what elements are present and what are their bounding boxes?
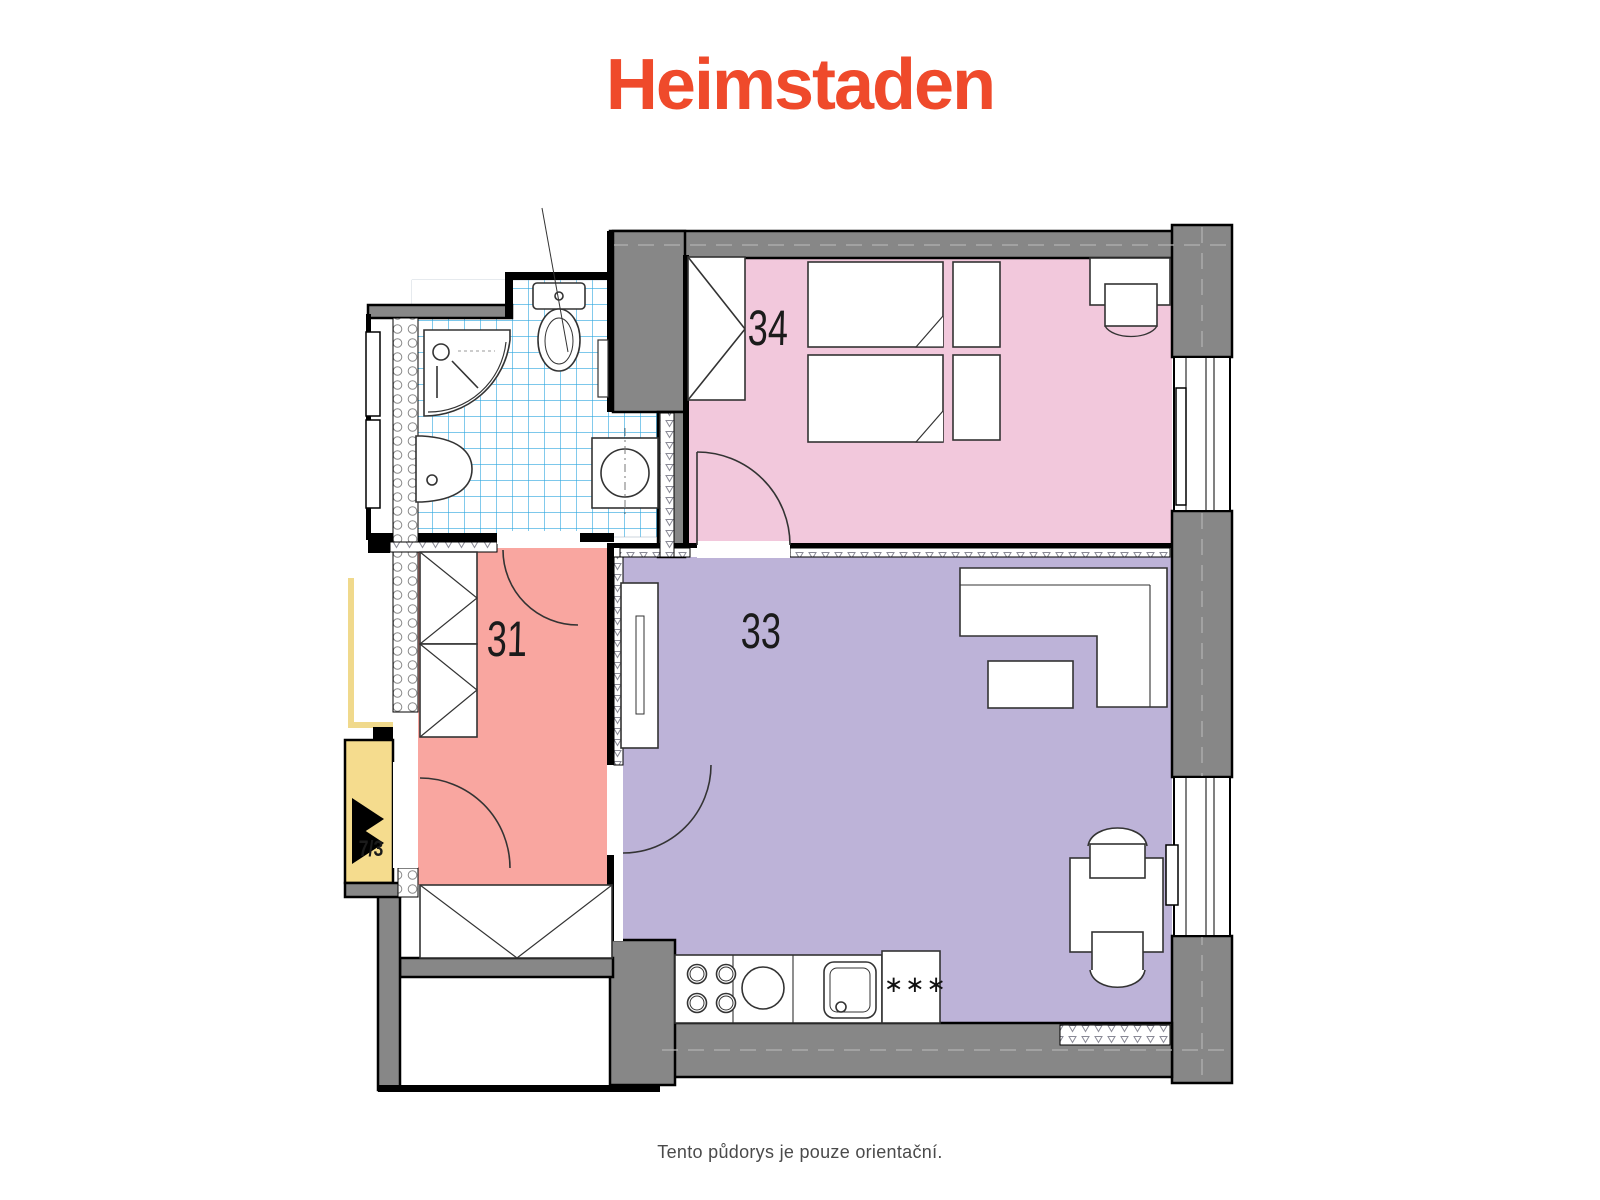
nightstand (953, 355, 1000, 440)
pipe-shaft (598, 340, 608, 397)
chair-icon (1090, 844, 1145, 878)
shower-head-icon (433, 344, 449, 360)
radiator (1166, 845, 1178, 905)
room-label-31: 31 (481, 614, 533, 664)
floor-plan (0, 0, 1600, 1200)
unit-label: 7/3 (351, 838, 391, 860)
room-label-33: 33 (735, 606, 787, 656)
coffee-table (988, 661, 1073, 708)
wardrobe-icon (688, 257, 745, 400)
window-niche-left (366, 332, 380, 416)
wardrobe-icon (420, 552, 477, 644)
fridge-symbol: ∗∗∗ (884, 971, 938, 998)
chair-icon (1092, 932, 1143, 972)
chair-icon (1105, 284, 1157, 326)
bed-icon (808, 262, 943, 347)
disclaimer-text: Tento půdorys je pouze orientační. (0, 1142, 1600, 1163)
floor-plan-page: Heimstaden (0, 0, 1600, 1200)
oven-icon (742, 967, 784, 1009)
window-niche-left (366, 420, 380, 508)
bed-icon (808, 355, 943, 442)
room-label-34: 34 (742, 303, 794, 353)
common-area-boundary (348, 578, 354, 724)
wardrobe-icon (420, 885, 612, 958)
radiator (1176, 388, 1186, 505)
window-living (1174, 777, 1230, 936)
nightstand (953, 262, 1000, 347)
wall-core (614, 855, 623, 941)
wardrobe-icon (420, 644, 477, 737)
